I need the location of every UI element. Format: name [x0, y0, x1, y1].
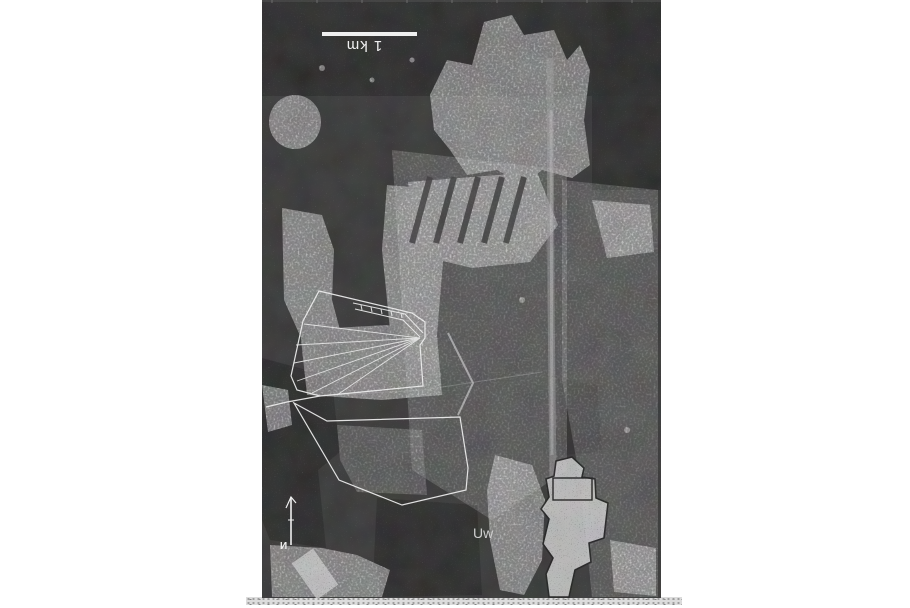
page: 1 km И Uw [0, 0, 910, 608]
scale-bar-label: 1 km [332, 37, 396, 54]
tonal-blotch [262, 0, 661, 598]
aerial-photo-figure: 1 km И Uw [262, 0, 661, 598]
aerial-photo [262, 0, 661, 598]
photo-annotation-label: Uw [473, 525, 493, 541]
scale-bar [322, 32, 417, 36]
north-arrow-label: И [280, 541, 287, 552]
scan-artifact-strip [246, 597, 682, 605]
